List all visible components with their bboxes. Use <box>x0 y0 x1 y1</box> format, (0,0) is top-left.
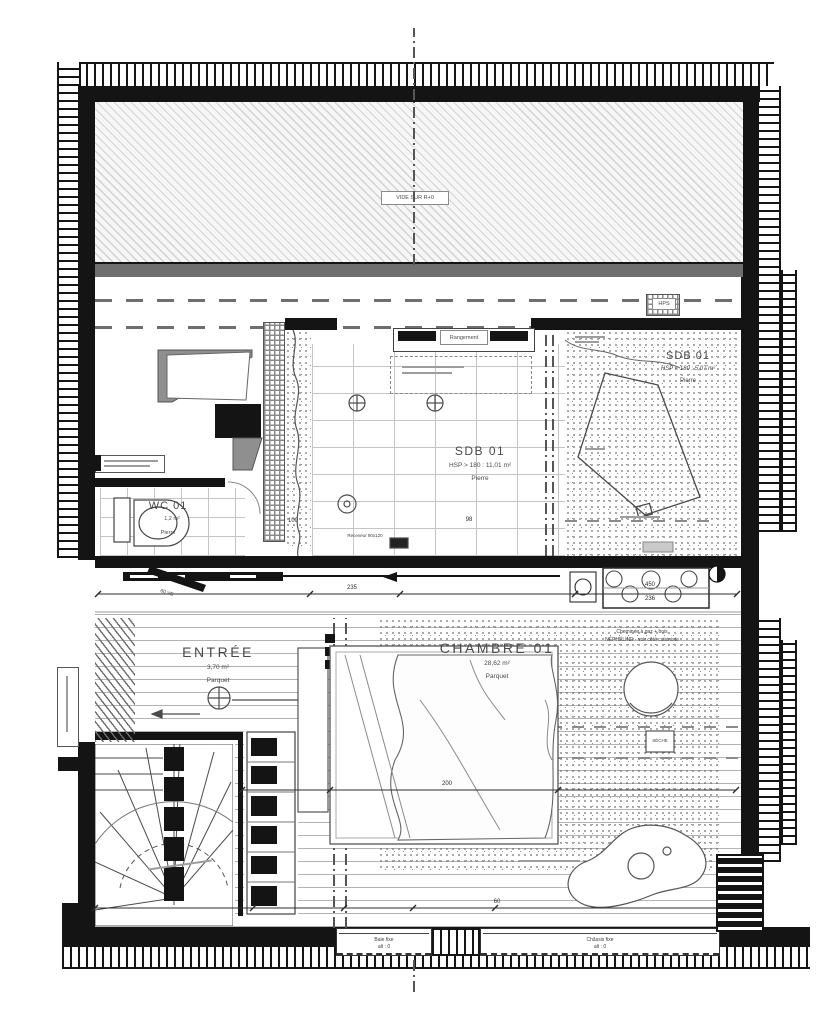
note-box-wc <box>95 455 165 473</box>
left-edge-block <box>58 757 78 771</box>
seche-label: SÈCHE <box>652 738 668 743</box>
window-mullion <box>432 928 478 956</box>
chaise-longue <box>568 825 706 907</box>
room-label-sdb-low: SDB 01 <box>666 350 710 362</box>
section-marker <box>709 566 725 582</box>
fireplace-note-1: Cheminée à gaz + bois <box>616 629 667 635</box>
armchair <box>624 662 678 716</box>
sdb-low-gray-box <box>643 542 673 552</box>
wardrobe <box>238 732 295 916</box>
room-floor-chambre: Parquet <box>486 673 509 680</box>
dim-100: 100 <box>288 518 298 524</box>
room-area-entree: 3,70 m² <box>207 664 229 671</box>
entree-door <box>152 687 316 718</box>
fireplace-note-2: NÉPHÉLINE - voir côté cuisiniste <box>605 637 679 643</box>
dim-235: 235 <box>347 585 357 591</box>
dim-200: 200 <box>442 781 452 787</box>
window-left-label1: Baie fixe <box>374 937 393 943</box>
note-box-wc-tab <box>95 455 101 471</box>
plan-linework <box>0 0 837 1024</box>
room-label-sdb-main: SDB 01 <box>455 444 505 458</box>
room-area-wc: 1,2 m² <box>164 516 180 522</box>
room-hsp-sdb-main: HSP > 180 : 11,01 m² <box>449 462 511 469</box>
dim-60: 60 <box>494 899 501 905</box>
sliding-door <box>123 566 560 592</box>
window-right: Châssis fixe alt : 0 <box>480 928 720 956</box>
dim-450: 450 <box>645 582 655 588</box>
window-left-label2: alt : 0 <box>378 944 390 950</box>
vanity <box>570 568 709 608</box>
wc-door-swing <box>228 482 260 514</box>
window-left: Baie fixe alt : 0 <box>336 928 432 956</box>
room-label-entree: ENTRÉE <box>182 644 254 660</box>
room-floor-entree: Parquet <box>207 677 230 684</box>
floor-plan: VIDE SUR R+0 HPS Rangement <box>0 0 837 1024</box>
note-box-left-edge <box>57 667 79 747</box>
room-label-wc: WC 01 <box>149 500 188 512</box>
window-right-label2: alt : 0 <box>594 944 606 950</box>
bed <box>298 634 558 844</box>
window-right-label1: Châssis fixe <box>587 937 614 943</box>
room-floor-wc: Pierre <box>161 530 176 536</box>
room-floor-sdb-low: Pierre <box>680 378 696 384</box>
sdb-fixtures <box>338 395 443 548</box>
room-label-chambre: CHAMBRE 01 <box>440 640 554 656</box>
roof-plane <box>158 350 262 470</box>
room-floor-sdb-main: Pierre <box>471 475 488 482</box>
receveur-label: Receveur 90x120 <box>347 533 382 538</box>
comb-block-br <box>716 854 764 932</box>
room-hsp-sdb-low: HSP < 180 : 5,07 m² <box>661 366 715 372</box>
dim-236: 236 <box>645 596 655 602</box>
dim-98: 98 <box>466 517 473 523</box>
room-area-chambre: 28,62 m² <box>484 660 510 667</box>
